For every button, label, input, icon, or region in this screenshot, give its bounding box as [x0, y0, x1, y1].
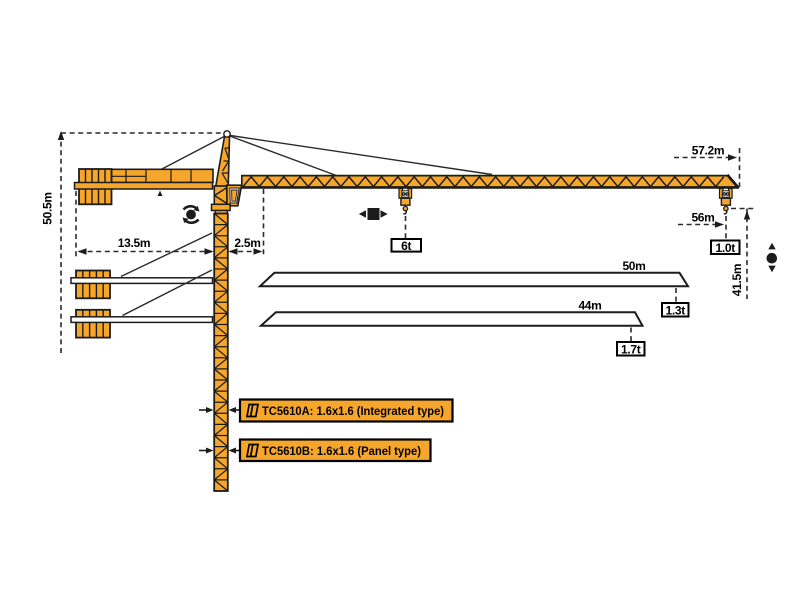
svg-text:TC5610A: 1.6x1.6 (Integrated: TC5610A: 1.6x1.6 (Integrated type)	[262, 404, 444, 418]
svg-text:50.5m: 50.5m	[41, 192, 55, 225]
svg-text:TC5610B: 1.6x1.6 (Panel type: TC5610B: 1.6x1.6 (Panel type)	[262, 444, 421, 458]
svg-text:13.5m: 13.5m	[118, 236, 151, 250]
svg-text:1.0t: 1.0t	[715, 241, 735, 255]
svg-text:44m: 44m	[578, 299, 601, 313]
svg-text:41.5m: 41.5m	[730, 264, 744, 297]
svg-text:1.3t: 1.3t	[665, 303, 685, 317]
svg-text:56m: 56m	[691, 211, 714, 225]
svg-text:1.7t: 1.7t	[621, 342, 641, 356]
svg-text:57.2m: 57.2m	[692, 144, 725, 158]
svg-text:6t: 6t	[401, 239, 411, 253]
svg-text:50m: 50m	[622, 259, 645, 273]
svg-text:2.5m: 2.5m	[234, 236, 260, 250]
